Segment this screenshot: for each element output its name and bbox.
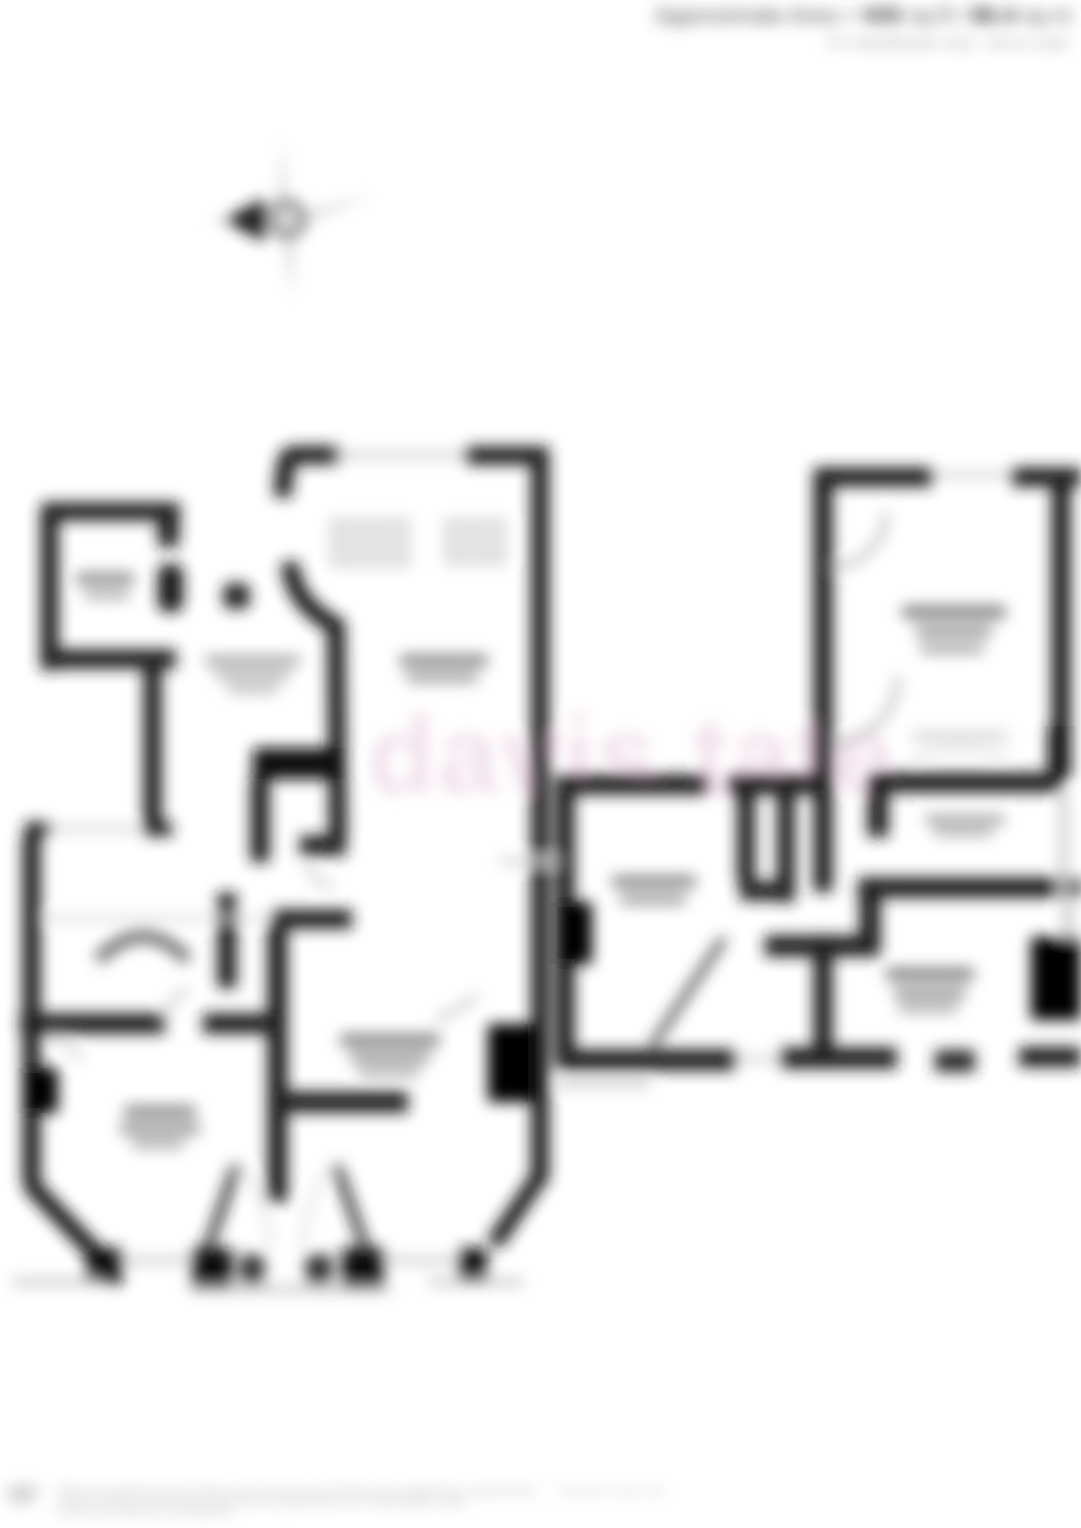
svg-text:Produced for Davis Tate: Produced for Davis Tate <box>557 1486 664 1497</box>
svg-text:Approximate Area = 930 sq ft /: Approximate Area = 930 sq ft / 86.4 sq m <box>655 2 1072 28</box>
svg-text:For identification only - Not: For identification only - Not to scale <box>827 35 1069 52</box>
svg-text:for any error, omission or mis: for any error, omission or mis-statement… <box>57 1507 236 1518</box>
svg-text:Whilst every attempt has been: Whilst every attempt has been made to en… <box>57 1486 536 1497</box>
